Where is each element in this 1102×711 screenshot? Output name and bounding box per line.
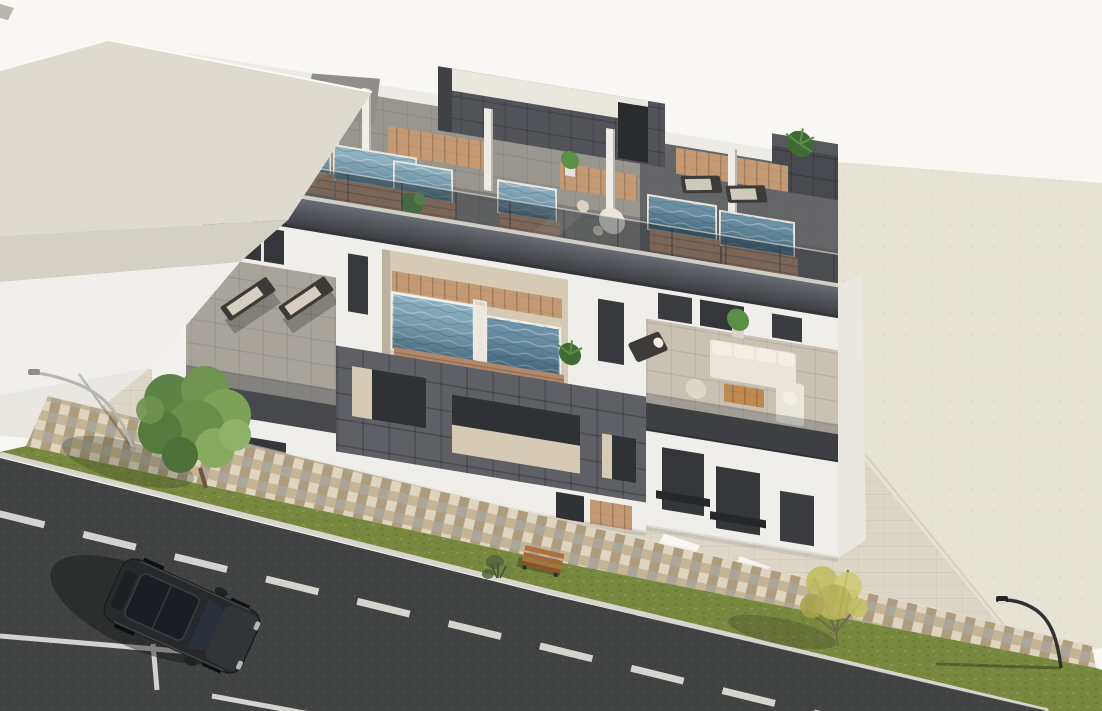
- grid-wall-opening: [602, 433, 636, 483]
- lamp-head: [28, 369, 40, 375]
- window: [598, 299, 624, 365]
- window: [348, 253, 368, 314]
- window: [772, 313, 802, 342]
- window: [780, 491, 814, 547]
- window: [662, 447, 704, 516]
- bulkhead-door: [618, 102, 648, 163]
- building-right-end-wall: [838, 274, 866, 558]
- architectural-render: [0, 0, 1102, 711]
